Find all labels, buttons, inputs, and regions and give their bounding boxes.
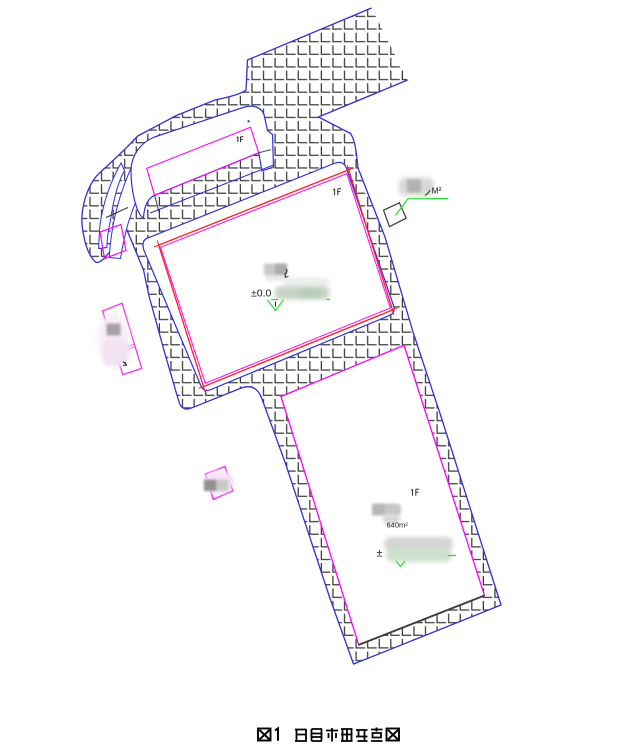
- svg-text:±0.0: ±0.0: [251, 288, 272, 300]
- svg-text:M²: M²: [432, 186, 442, 196]
- svg-text:±: ±: [377, 548, 383, 560]
- svg-text:640m²: 640m²: [387, 521, 409, 530]
